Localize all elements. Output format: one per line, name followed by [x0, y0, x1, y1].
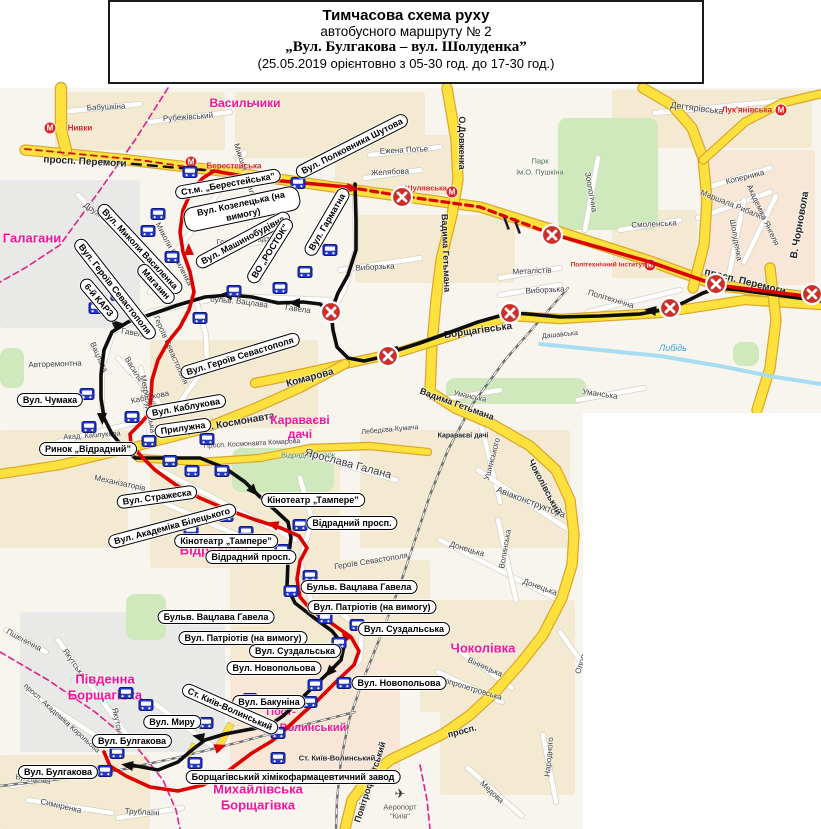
street	[468, 768, 522, 816]
bus-light	[150, 233, 152, 235]
district-label: Відрадний	[180, 543, 249, 558]
bus-light	[85, 429, 87, 431]
bus-light	[280, 760, 282, 762]
city-block	[230, 660, 400, 772]
bus-light	[294, 185, 296, 187]
street-label: Металістів	[512, 265, 552, 276]
route-callout: Магазин	[134, 261, 177, 307]
street-casing	[150, 152, 245, 292]
bus-light	[101, 773, 103, 775]
street-label: Василя Чумака	[123, 355, 159, 409]
city-block	[700, 150, 815, 285]
street-label: Дашавська	[542, 330, 579, 340]
street	[498, 520, 516, 600]
street	[620, 220, 680, 230]
bus-stop-box	[350, 620, 364, 631]
bus-windshield	[100, 768, 110, 772]
route-direction-arrow	[107, 315, 123, 330]
bus-windshield	[144, 438, 154, 442]
route-callout: Вул. Каблукова	[145, 393, 227, 421]
street-label: Народного	[543, 737, 555, 777]
bus-light	[191, 765, 193, 767]
street	[698, 192, 770, 218]
street-label: просп.	[447, 722, 478, 739]
major-road	[757, 268, 776, 410]
street	[440, 540, 562, 602]
route-callout: ВО „РОСТОК”	[245, 216, 296, 286]
street-casing	[332, 186, 356, 312]
bus-stop-icon	[98, 766, 112, 777]
bus-stop-icon	[139, 700, 153, 711]
street-casing	[300, 452, 396, 480]
bus-stop-icon	[323, 245, 337, 256]
street-label: Симиренка	[40, 797, 83, 815]
street-casing	[60, 104, 140, 112]
route-direction-arrow	[347, 183, 360, 194]
bus-light	[174, 259, 176, 261]
route-callout: Вул. Булгакова	[92, 734, 172, 748]
street-label: Гавела	[285, 303, 312, 316]
street-casing	[28, 800, 112, 813]
bus-light	[280, 735, 282, 737]
bus-stop-box	[141, 226, 155, 237]
route-callout: 6-й КАРЗ	[77, 276, 121, 324]
route-direction-arrow	[246, 484, 261, 500]
bus-light	[203, 441, 205, 443]
major-road-casing	[0, 364, 345, 474]
route-callout: Ст.м. „Берестейська”	[174, 168, 282, 200]
bus-windshield	[187, 468, 197, 472]
bus-light	[197, 765, 199, 767]
bus-light	[188, 473, 190, 475]
bus-light	[202, 320, 204, 322]
street	[744, 196, 776, 262]
street	[28, 800, 112, 813]
bus-stop-icon	[239, 527, 253, 538]
street-label: Механізаторів	[94, 473, 147, 493]
metro-station-label: Шулявська	[405, 184, 447, 193]
major-road-casing	[255, 300, 821, 383]
bus-windshield	[141, 702, 151, 706]
metro-icon: М	[644, 259, 657, 272]
bus-stop-box	[184, 526, 198, 537]
street-casing	[58, 640, 132, 742]
street-label: Героїв Севастополя	[334, 551, 409, 572]
map-labels-layer: БабушкінаРубежівськийпросп. Перемогипрос…	[0, 0, 821, 829]
street	[150, 152, 245, 292]
bus-light	[353, 627, 355, 629]
bus-stop-box	[291, 178, 305, 189]
bus-light	[326, 252, 328, 254]
city-block	[440, 690, 575, 795]
street-label: Акад. Каблукова	[63, 429, 121, 442]
major-road	[703, 94, 820, 160]
bus-light	[148, 707, 150, 709]
metro-station-label: Берестейська	[207, 162, 262, 171]
route-callout: Вул. Гарматна	[302, 186, 352, 259]
street-casing	[12, 776, 60, 786]
bus-light	[302, 527, 304, 529]
route-callout: Вул. Машинобудівна	[193, 209, 292, 271]
city-block	[230, 560, 430, 688]
street-label: О.Довженка	[457, 116, 467, 169]
street	[543, 735, 556, 802]
street	[58, 409, 190, 442]
street-label: Гавела	[121, 326, 148, 339]
street-casing	[500, 268, 560, 278]
bus-stop-icon	[199, 718, 213, 729]
street	[365, 170, 420, 178]
bus-stop-box	[215, 466, 229, 477]
bus-windshield	[165, 458, 175, 462]
bus-stop-box	[82, 422, 96, 433]
street	[60, 104, 140, 112]
bus-light	[287, 593, 289, 595]
bus-windshield	[325, 247, 335, 251]
bus-windshield	[202, 436, 212, 440]
street	[726, 200, 744, 290]
airport-label: Аеропорт	[383, 803, 416, 812]
bus-stop-box	[80, 389, 94, 400]
route-callout: Кінотеатр „Тампере”	[174, 534, 278, 548]
bus-windshield	[352, 622, 362, 626]
bus-stop-box	[199, 718, 213, 729]
street	[118, 808, 182, 818]
bus-windshield	[221, 513, 231, 517]
street	[500, 268, 560, 278]
bus-windshield	[273, 197, 283, 201]
street-label: Відрадний парк	[281, 451, 335, 460]
district-label: Волинський	[280, 722, 347, 734]
bus-windshield	[229, 288, 239, 292]
bus-light	[280, 202, 282, 204]
street-casing	[468, 768, 522, 816]
route-direction-arrow	[321, 665, 336, 681]
street-casing	[744, 196, 776, 262]
major-road-casing	[61, 88, 66, 150]
railway	[336, 288, 568, 829]
bus-stop-icon	[215, 466, 229, 477]
street-casing	[500, 285, 560, 295]
bus-stop-box	[98, 766, 112, 777]
closed-stop-circle	[706, 274, 726, 294]
street	[160, 470, 295, 540]
route-callout: Бульв. Вацлава Гавела	[158, 610, 275, 624]
street-label: Миколи Василенка	[232, 142, 262, 212]
bus-stop-box	[111, 290, 125, 301]
route-callout: Ринок „Відрадний”	[39, 442, 137, 456]
street-label: Ст. Київ-Волинський	[299, 754, 375, 763]
street	[150, 700, 212, 746]
street-label: Ушинського	[482, 437, 502, 481]
street-label: Якутська	[61, 647, 87, 679]
street-casing	[118, 808, 182, 818]
street-casing	[180, 300, 207, 402]
metro-icon: М	[775, 104, 788, 117]
street	[28, 692, 112, 746]
street-label: Академіка Янгеля	[745, 183, 781, 247]
bus-stop-icon	[184, 526, 198, 537]
street-label: Авіаконструктора	[495, 484, 567, 519]
closed-stop-marker	[392, 187, 412, 207]
map-canvas[interactable]: БабушкінаРубежівськийпросп. Перемогипрос…	[0, 0, 821, 829]
bus-stop-box	[284, 586, 298, 597]
bus-light	[208, 725, 210, 727]
street-casing	[150, 700, 212, 746]
bus-stop-box	[219, 511, 233, 522]
bus-windshield	[286, 588, 296, 592]
street	[300, 478, 312, 604]
bus-windshield	[201, 720, 211, 724]
street-casing	[480, 420, 500, 502]
city-block	[612, 90, 812, 148]
bus-windshield	[277, 547, 287, 551]
city-block	[612, 210, 697, 278]
street	[6, 630, 46, 652]
closed-stop-marker	[321, 302, 341, 322]
bus-stop-icon	[291, 178, 305, 189]
bus-stop-box	[227, 286, 241, 297]
bus-light	[346, 685, 348, 687]
bus-stop-icon	[141, 226, 155, 237]
street	[588, 290, 680, 312]
bus-stop-box	[89, 303, 103, 314]
bus-light	[119, 755, 121, 757]
city-block	[20, 612, 225, 752]
bus-light	[252, 701, 254, 703]
route-callout: Вул. Миру	[143, 715, 201, 729]
street-label: Донецька	[449, 539, 486, 558]
bus-stop-box	[139, 700, 153, 711]
park-area	[558, 118, 658, 230]
street	[500, 285, 560, 295]
metro-icon: М	[185, 156, 198, 169]
bus-stop-icon	[350, 620, 364, 631]
street	[118, 358, 162, 406]
route-callout: Прилужна	[154, 417, 212, 439]
bus-stop-box	[185, 466, 199, 477]
map-base-layer	[0, 0, 821, 829]
metro-icon: М	[44, 122, 57, 135]
closed-stop-x	[712, 280, 720, 288]
bus-stop-box	[193, 313, 207, 324]
bus-windshield	[190, 760, 200, 764]
closed-stop-marker	[706, 274, 726, 294]
bus-windshield	[293, 180, 303, 184]
river-lybid	[540, 344, 821, 384]
bus-stop-icon	[183, 167, 197, 178]
bus-light	[83, 396, 85, 398]
bus-light	[154, 216, 156, 218]
stop-callouts-layer: Ст.м. „Берестейська”Вул. Козелецька (на …	[0, 0, 821, 829]
park-area	[733, 342, 759, 366]
river-label: Либідь	[659, 343, 687, 353]
street-label: Желябова	[371, 167, 410, 178]
district-label: дачі	[288, 427, 312, 441]
bus-stop-box	[243, 694, 257, 705]
bus-light	[166, 463, 168, 465]
street	[455, 648, 512, 688]
street-label: Виборзька	[355, 261, 395, 272]
bus-light	[306, 704, 308, 706]
park-area	[446, 378, 586, 404]
bus-light	[335, 645, 337, 647]
bus-stop-icon	[200, 434, 214, 445]
bus-windshield	[82, 391, 92, 395]
street-casing	[726, 200, 744, 290]
closed-stop-x	[327, 308, 335, 316]
street-label: просп. Перемоги	[43, 154, 127, 169]
bus-light	[193, 533, 195, 535]
map-cutout	[583, 413, 821, 829]
street-casing	[28, 692, 112, 746]
street-casing	[150, 112, 230, 122]
street-label: Авторемонтна	[28, 359, 82, 370]
bus-light	[122, 695, 124, 697]
major-road	[255, 300, 821, 383]
bus-stop-icon	[151, 209, 165, 220]
street	[332, 186, 356, 312]
bus-light	[228, 518, 230, 520]
major-road	[138, 446, 428, 462]
district-label: Галагани	[3, 231, 61, 246]
route-direction-arrow	[220, 289, 233, 300]
route-direction-arrow	[184, 243, 194, 255]
metro-station-label: Лук'янівська	[722, 106, 772, 115]
street-casing	[585, 158, 598, 230]
bus-stop-box	[183, 167, 197, 178]
major-road-casing	[25, 150, 821, 299]
bus-stop-box	[332, 638, 346, 649]
bus-windshield	[339, 680, 349, 684]
bus-stop-icon	[337, 678, 351, 689]
street	[480, 420, 500, 502]
bus-stop-box	[163, 456, 177, 467]
district-boundary	[420, 765, 430, 829]
street-label: просп. Академіка Корольова	[22, 681, 102, 754]
street-casing	[440, 540, 562, 602]
street	[12, 776, 60, 786]
street	[655, 100, 790, 113]
bus-stop-icon	[271, 728, 285, 739]
bus-stop-box	[239, 527, 253, 538]
bus-stop-box	[303, 571, 317, 582]
bus-stop-box	[275, 545, 289, 556]
bridge-mark	[216, 722, 234, 748]
bus-windshield	[143, 228, 153, 232]
street-casing	[300, 478, 312, 604]
bus-stop-box	[271, 728, 285, 739]
bus-light	[134, 419, 136, 421]
bus-stop-box	[119, 688, 133, 699]
street-label: Каблукова	[130, 389, 170, 406]
bus-windshield	[273, 755, 283, 759]
bus-light	[142, 707, 144, 709]
bus-light	[293, 593, 295, 595]
bus-light	[187, 533, 189, 535]
route-direction-arrow	[97, 413, 107, 425]
bus-stop-icon	[227, 286, 241, 297]
bridge-mark	[186, 743, 197, 758]
bus-stop-box	[271, 753, 285, 764]
district-boundary	[0, 652, 180, 829]
bus-stop-icon	[303, 571, 317, 582]
city-block	[0, 755, 150, 829]
major-road	[345, 88, 574, 829]
street	[438, 672, 502, 702]
bus-stop-box	[318, 613, 332, 624]
street-label: Рубежівський	[163, 111, 214, 123]
city-block	[0, 180, 140, 328]
bus-light	[98, 310, 100, 312]
city-block	[355, 215, 515, 283]
major-road	[61, 88, 66, 150]
bus-windshield	[295, 522, 305, 526]
major-road	[643, 88, 707, 288]
bus-stop-icon	[219, 511, 233, 522]
bus-windshield	[275, 285, 285, 289]
bus-stop-box	[308, 680, 322, 691]
bus-windshield	[127, 414, 137, 418]
bus-stop-box	[165, 252, 179, 263]
park-area	[232, 448, 334, 492]
street-label: Миколи Василенка	[154, 221, 195, 287]
city-block	[150, 460, 340, 568]
bus-stop-icon	[165, 252, 179, 263]
street-label: Булгакова	[15, 772, 51, 786]
route-callout: Вул. Патріотів (на вимогу)	[179, 631, 308, 645]
street-casing	[478, 470, 572, 532]
bus-light	[332, 252, 334, 254]
closed-stop-x	[506, 309, 514, 317]
major-road-casing	[757, 268, 776, 410]
street	[578, 388, 644, 400]
street-label: Уманська	[453, 388, 487, 404]
route-direction-arrow	[288, 298, 300, 308]
street-casing	[560, 632, 600, 688]
street-casing	[438, 672, 502, 702]
metro-station-label: Нивки	[68, 124, 93, 133]
street-casing	[6, 630, 46, 652]
route-callout: Борщагівський хімікофармацевтичний завод	[186, 770, 401, 784]
route-black	[101, 288, 821, 770]
bus-light	[306, 578, 308, 580]
bus-stop-icon	[188, 758, 202, 769]
closed-stop-circle	[321, 302, 341, 322]
route-direction-arrow	[337, 627, 352, 643]
bus-stop-box	[323, 245, 337, 256]
bus-windshield	[245, 696, 255, 700]
bus-light	[276, 290, 278, 292]
street-label: Смоленська	[631, 218, 677, 229]
bus-light	[202, 725, 204, 727]
street-label: Лебедєва-Кумача	[361, 424, 419, 436]
street-label: Караваєві дачі	[438, 433, 489, 440]
route-red	[552, 234, 821, 298]
street	[300, 452, 396, 480]
bus-stop-box	[293, 520, 307, 531]
closed-stop-x	[398, 193, 406, 201]
street-label: Ополчення	[573, 633, 594, 675]
closed-stop-circle	[802, 284, 821, 304]
bus-stop-box	[151, 209, 165, 220]
railway	[0, 712, 355, 786]
district-label: Чоколівка	[451, 641, 516, 656]
bus-light	[321, 620, 323, 622]
district-label: Південна	[75, 672, 134, 687]
route-callout: Вул. Козелецька (на вимогу)	[182, 185, 303, 234]
bus-windshield	[153, 211, 163, 215]
